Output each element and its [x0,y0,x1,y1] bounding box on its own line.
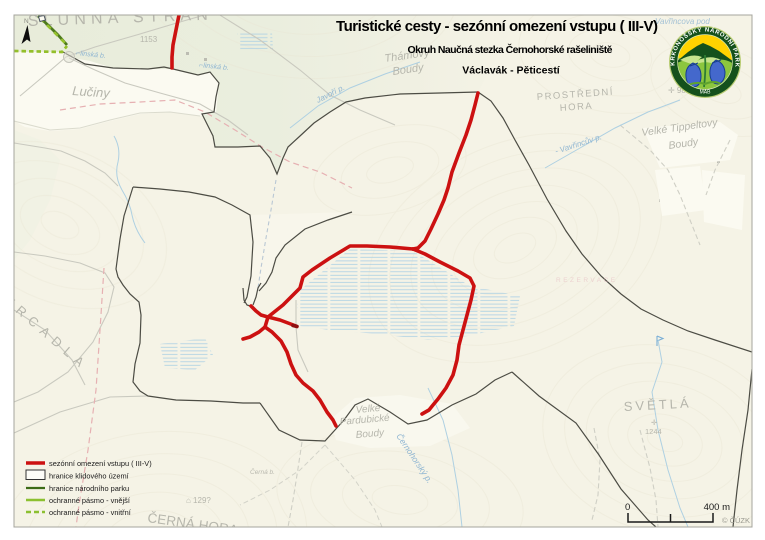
svg-text:N: N [24,18,29,25]
svg-text:Lučiny: Lučiny [72,83,112,101]
svg-text:0: 0 [625,502,630,513]
svg-text:1153: 1153 [140,35,158,44]
svg-text:HORA: HORA [559,101,593,114]
svg-text:hranice klidového území: hranice klidového území [49,472,130,481]
svg-text:Černá b.: Černá b. [250,467,275,476]
svg-text:MAB: MAB [700,90,712,96]
svg-text:sezónní omezení vstupu ( III-V: sezónní omezení vstupu ( III-V) [49,459,152,468]
svg-text:Václavák - Pěticestí: Václavák - Pěticestí [462,65,561,77]
svg-text:ochranné pásmo - vnější: ochranné pásmo - vnější [49,496,131,505]
svg-text:REZERVACE: REZERVACE [556,277,618,284]
svg-text:400 m: 400 m [704,502,730,513]
svg-text:© ČÚZK: © ČÚZK [722,516,750,525]
svg-text:hranice národního parku: hranice národního parku [49,484,129,493]
svg-text:Vavřincova pod: Vavřincova pod [655,17,710,26]
svg-text:Turistické cesty - sezónní ome: Turistické cesty - sezónní omezení vstup… [336,18,658,35]
svg-text:1244: 1244 [645,427,662,436]
svg-text:ochranné pásmo - vnitřní: ochranné pásmo - vnitřní [49,508,132,517]
svg-text:Okruh Naučná stezka Černohorsk: Okruh Naučná stezka Černohorské rašelini… [408,43,613,56]
svg-text:⌂ 129?: ⌂ 129? [186,496,211,505]
svg-text:✛: ✛ [651,418,658,427]
